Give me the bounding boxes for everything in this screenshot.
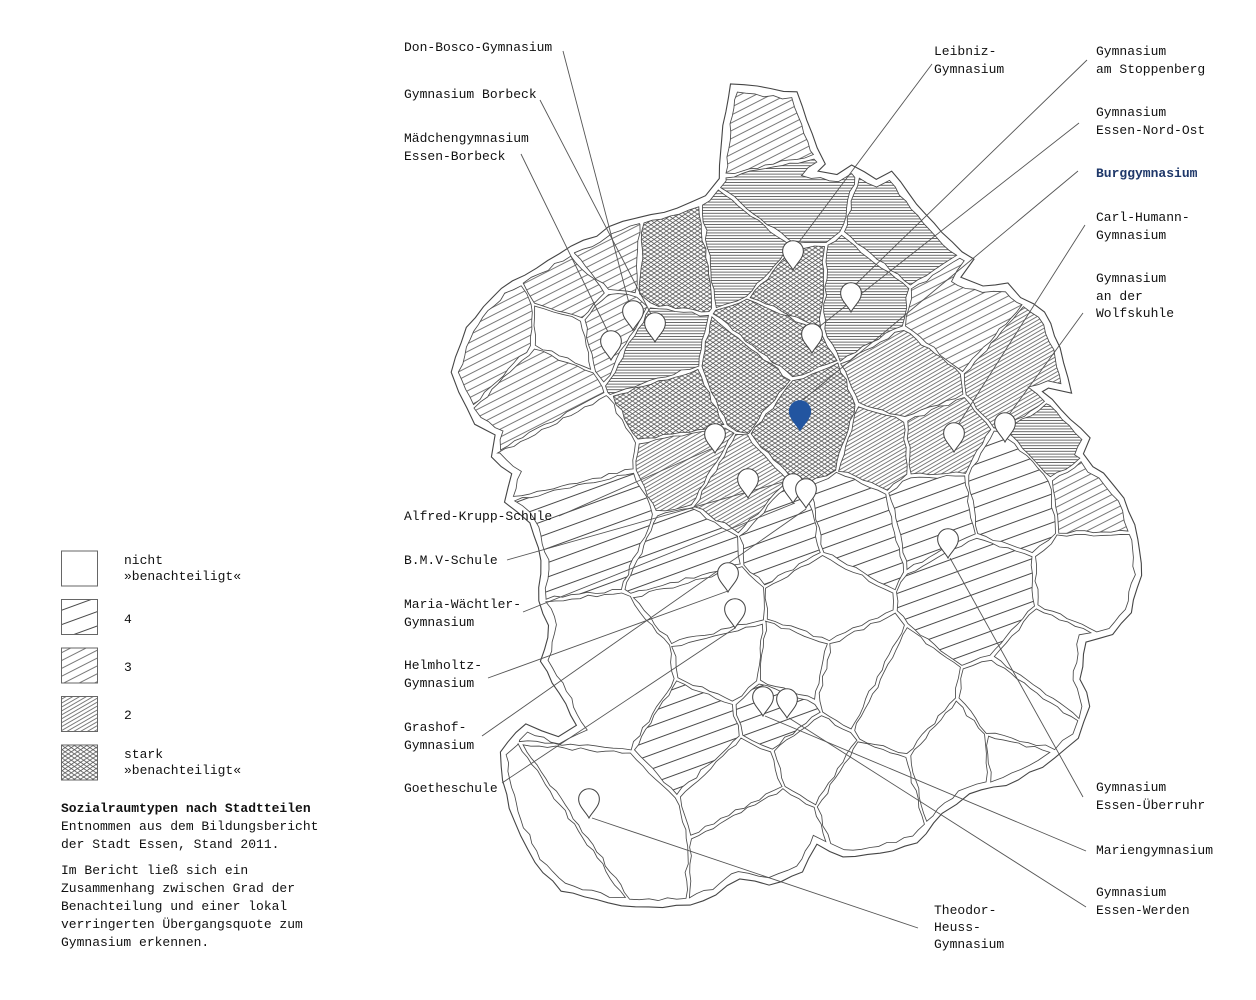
svg-text:Gymnasium: Gymnasium	[1096, 44, 1166, 59]
svg-text:Gymnasium: Gymnasium	[934, 62, 1004, 77]
svg-text:Grashof-: Grashof-	[404, 720, 466, 735]
svg-text:Zusammenhang zwischen Grad der: Zusammenhang zwischen Grad der	[61, 881, 295, 896]
svg-text:Essen-Werden: Essen-Werden	[1096, 903, 1190, 918]
svg-text:Helmholtz-: Helmholtz-	[404, 658, 482, 673]
svg-text:an der: an der	[1096, 289, 1143, 304]
svg-text:Don-Bosco-Gymnasium: Don-Bosco-Gymnasium	[404, 40, 552, 55]
svg-text:Gymnasium Borbeck: Gymnasium Borbeck	[404, 87, 537, 102]
svg-text:Alfred-Krupp-Schule: Alfred-Krupp-Schule	[404, 509, 552, 524]
svg-text:der Stadt Essen, Stand 2011.: der Stadt Essen, Stand 2011.	[61, 837, 279, 852]
svg-text:Maria-Wächtler-: Maria-Wächtler-	[404, 597, 521, 612]
svg-text:Essen-Nord-Ost: Essen-Nord-Ost	[1096, 123, 1205, 138]
svg-text:Gymnasium: Gymnasium	[1096, 105, 1166, 120]
svg-text:Goetheschule: Goetheschule	[404, 781, 498, 796]
svg-text:Gymnasium: Gymnasium	[404, 615, 474, 630]
svg-text:Gymnasium: Gymnasium	[1096, 228, 1166, 243]
svg-text:Gymnasium: Gymnasium	[1096, 271, 1166, 286]
svg-text:Gymnasium: Gymnasium	[934, 937, 1004, 952]
svg-text:Essen-Borbeck: Essen-Borbeck	[404, 149, 506, 164]
svg-text:Mariengymnasium: Mariengymnasium	[1096, 843, 1213, 858]
svg-text:»benachteiligt«: »benachteiligt«	[124, 569, 241, 584]
svg-text:4: 4	[124, 612, 132, 627]
svg-text:Theodor-: Theodor-	[934, 903, 996, 918]
svg-text:Gymnasium: Gymnasium	[404, 676, 474, 691]
svg-text:verringerten Übergangsquote zu: verringerten Übergangsquote zum	[61, 917, 303, 932]
svg-text:Im Bericht ließ sich ein: Im Bericht ließ sich ein	[61, 863, 248, 878]
svg-text:Gymnasium: Gymnasium	[404, 738, 474, 753]
svg-text:Entnommen aus dem Bildungsberi: Entnommen aus dem Bildungsbericht	[61, 819, 318, 834]
svg-text:Burggymnasium: Burggymnasium	[1096, 166, 1198, 181]
svg-text:Gymnasium: Gymnasium	[1096, 780, 1166, 795]
svg-text:3: 3	[124, 660, 132, 675]
svg-text:Leibniz-: Leibniz-	[934, 44, 996, 59]
svg-text:»benachteiligt«: »benachteiligt«	[124, 763, 241, 778]
svg-text:B.M.V-Schule: B.M.V-Schule	[404, 553, 498, 568]
svg-text:2: 2	[124, 708, 132, 723]
svg-text:stark: stark	[124, 747, 163, 762]
svg-text:Mädchengymnasium: Mädchengymnasium	[404, 131, 529, 146]
svg-text:Gymnasium: Gymnasium	[1096, 885, 1166, 900]
svg-text:Carl-Humann-: Carl-Humann-	[1096, 210, 1190, 225]
svg-text:Sozialraumtypen nach Stadtteil: Sozialraumtypen nach Stadtteilen	[61, 801, 311, 816]
svg-text:nicht: nicht	[124, 553, 163, 568]
svg-text:Heuss-: Heuss-	[934, 920, 981, 935]
svg-text:Benachteilung und einer lokal: Benachteilung und einer lokal	[61, 899, 287, 914]
svg-text:Wolfskuhle: Wolfskuhle	[1096, 306, 1174, 321]
svg-text:Essen-Überruhr: Essen-Überruhr	[1096, 798, 1205, 813]
svg-text:am Stoppenberg: am Stoppenberg	[1096, 62, 1205, 77]
svg-text:Gymnasium erkennen.: Gymnasium erkennen.	[61, 935, 209, 950]
